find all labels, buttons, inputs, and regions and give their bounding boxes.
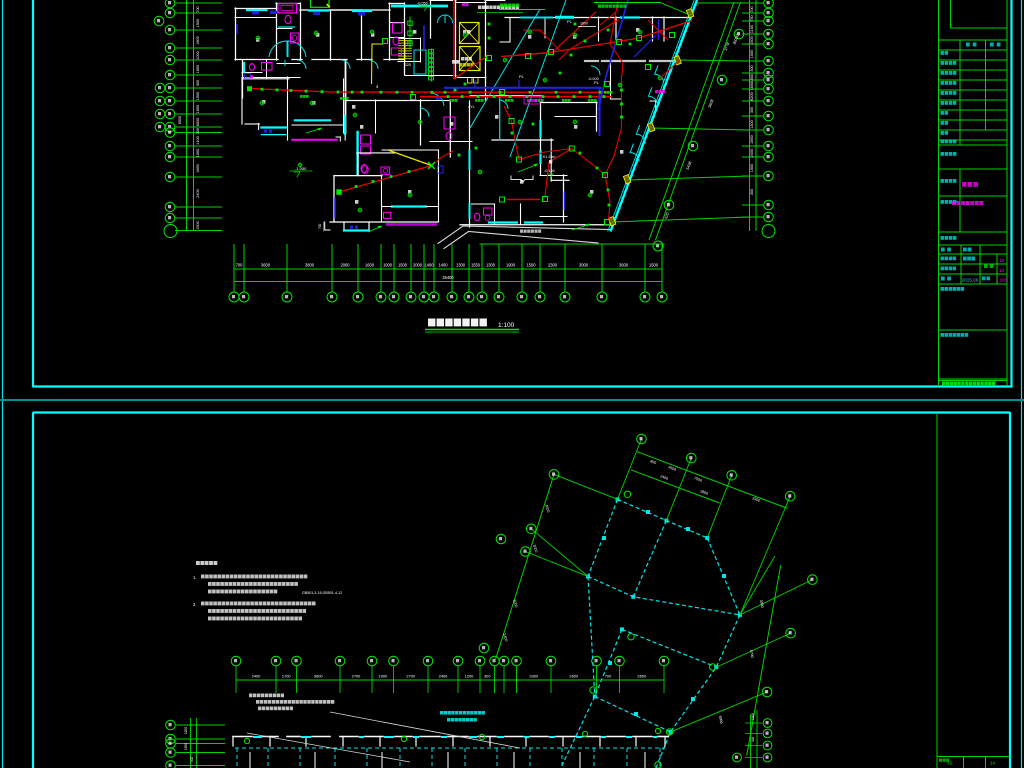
svg-text:700: 700	[605, 674, 612, 679]
svg-text:1200: 1200	[184, 727, 188, 734]
svg-text:2700: 2700	[352, 674, 361, 679]
svg-text:6500: 6500	[178, 116, 182, 124]
svg-text:1700: 1700	[282, 674, 291, 679]
svg-text:1800: 1800	[196, 65, 200, 73]
svg-text:1500: 1500	[751, 713, 755, 720]
svg-text:14: 14	[999, 268, 1005, 274]
svg-text:2600: 2600	[569, 674, 578, 679]
svg-text:1850: 1850	[196, 164, 200, 172]
svg-text:1000: 1000	[383, 263, 393, 268]
svg-text:1200: 1200	[465, 674, 474, 679]
svg-text:2600: 2600	[637, 674, 646, 679]
svg-text:K1.20m: K1.20m	[543, 155, 555, 159]
svg-text:300: 300	[751, 736, 755, 742]
svg-text:700: 700	[236, 263, 244, 268]
svg-text:1600: 1600	[196, 105, 200, 113]
svg-text:3600: 3600	[619, 263, 629, 268]
svg-text:700: 700	[318, 223, 322, 229]
svg-text:1900: 1900	[506, 263, 516, 268]
svg-text:1500: 1500	[196, 221, 200, 229]
svg-text:300: 300	[196, 80, 200, 86]
svg-text:700: 700	[750, 6, 754, 12]
svg-text:3000: 3000	[579, 263, 589, 268]
svg-text:2700: 2700	[406, 674, 415, 679]
svg-text:1000: 1000	[196, 51, 200, 59]
svg-text:1400: 1400	[438, 263, 448, 268]
svg-text:6500: 6500	[196, 118, 200, 126]
svg-text:300: 300	[190, 756, 194, 762]
svg-text:2400: 2400	[196, 189, 200, 197]
svg-text:1:100: 1:100	[498, 322, 515, 329]
svg-text:1500: 1500	[196, 19, 200, 27]
svg-text:1300: 1300	[456, 263, 466, 268]
svg-text:2300: 2300	[548, 263, 558, 268]
svg-text:1800: 1800	[196, 36, 200, 44]
svg-text:1.: 1.	[193, 575, 197, 580]
svg-text:1000: 1000	[750, 50, 754, 58]
svg-text:PL: PL	[519, 74, 525, 79]
svg-text:2400: 2400	[439, 674, 448, 679]
svg-text:1160: 1160	[750, 25, 754, 33]
svg-text:700: 700	[196, 6, 200, 12]
svg-text:2015.06: 2015.06	[962, 278, 979, 283]
svg-text:14: 14	[990, 761, 996, 766]
svg-text:1500: 1500	[196, 92, 200, 100]
svg-text:2000: 2000	[413, 263, 423, 268]
svg-text:300: 300	[196, 128, 200, 134]
svg-text:1:100: 1:100	[996, 278, 1008, 283]
svg-text:1500: 1500	[750, 164, 754, 172]
svg-text:GB501-3-16,GB501-4-12: GB501-3-16,GB501-4-12	[302, 591, 342, 595]
svg-text:300: 300	[484, 674, 491, 679]
svg-text:3800: 3800	[305, 263, 315, 268]
svg-text:1800: 1800	[580, 22, 588, 26]
svg-text:1600: 1600	[365, 263, 375, 268]
svg-text:PL: PL	[567, 19, 573, 24]
svg-text:750: 750	[750, 15, 754, 21]
svg-text:2400: 2400	[750, 149, 754, 157]
svg-text:1550: 1550	[471, 263, 481, 268]
svg-text:1400: 1400	[424, 263, 434, 268]
svg-text:2400: 2400	[252, 674, 261, 679]
svg-text:1400: 1400	[196, 136, 200, 144]
svg-text:1500: 1500	[649, 263, 659, 268]
svg-text:-0.100: -0.100	[544, 169, 555, 173]
svg-text:1500: 1500	[526, 263, 536, 268]
svg-text:-0.050: -0.050	[417, 2, 428, 6]
svg-text:2000: 2000	[340, 263, 350, 268]
svg-text:1500: 1500	[184, 743, 188, 750]
svg-text:300: 300	[750, 65, 754, 71]
svg-text:300: 300	[750, 107, 754, 113]
svg-text:8200: 8200	[750, 92, 754, 100]
svg-text:-0.000: -0.000	[588, 77, 599, 81]
svg-text:1300: 1300	[196, 149, 200, 157]
svg-text:300: 300	[750, 189, 754, 195]
svg-text:2.: 2.	[193, 602, 197, 607]
svg-text:1300: 1300	[750, 120, 754, 128]
svg-text:1850: 1850	[750, 135, 754, 143]
svg-text:3300: 3300	[529, 674, 538, 679]
svg-text:3600: 3600	[261, 263, 271, 268]
svg-text:36400: 36400	[442, 275, 454, 280]
svg-text:1500: 1500	[750, 74, 754, 82]
svg-text:1500: 1500	[750, 36, 754, 44]
svg-text:1500: 1500	[398, 263, 408, 268]
svg-text:1600: 1600	[750, 82, 754, 90]
svg-text:S20: S20	[404, 62, 412, 67]
svg-text:13: 13	[999, 258, 1005, 264]
svg-text:1900: 1900	[378, 674, 387, 679]
svg-text:1300: 1300	[486, 263, 496, 268]
svg-text:3600: 3600	[314, 674, 323, 679]
